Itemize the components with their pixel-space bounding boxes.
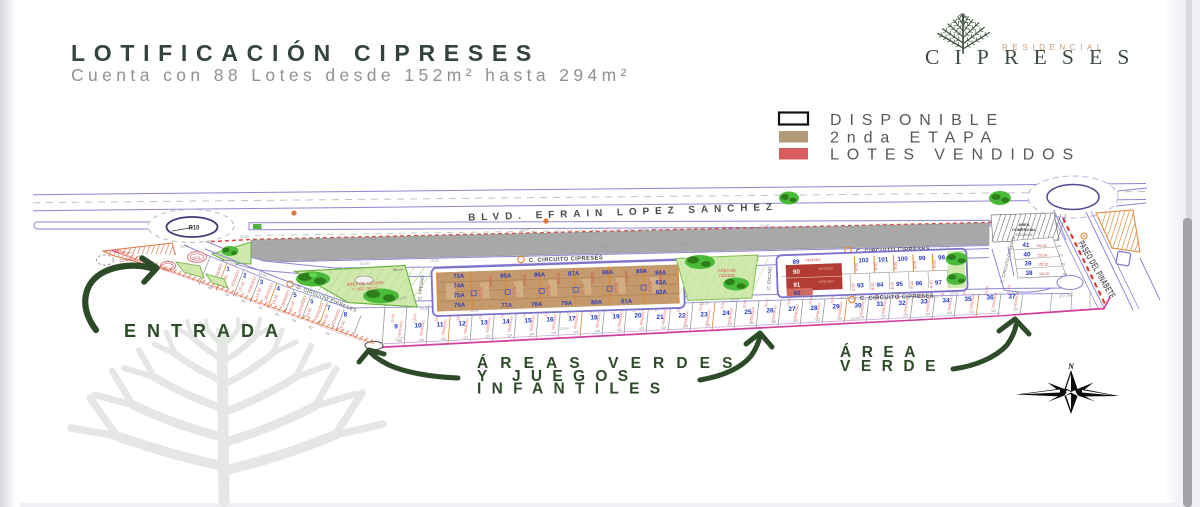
svg-text:15.00: 15.00 <box>730 298 739 302</box>
svg-text:92: 92 <box>794 290 802 297</box>
svg-text:8.00: 8.00 <box>929 280 933 288</box>
svg-text:100: 100 <box>897 256 908 263</box>
svg-text:152.00: 152.00 <box>659 270 663 282</box>
svg-text:15.00: 15.00 <box>950 291 959 295</box>
svg-text:89: 89 <box>792 259 800 266</box>
svg-text:152.00: 152.00 <box>489 276 493 288</box>
svg-text:15.00: 15.00 <box>520 228 529 232</box>
svg-text:15.00: 15.00 <box>240 235 249 239</box>
svg-text:96: 96 <box>915 280 923 287</box>
svg-text:41: 41 <box>1023 242 1030 249</box>
svg-text:89A: 89A <box>636 269 648 275</box>
svg-text:VERDE: VERDE <box>840 358 946 375</box>
svg-text:15.00: 15.00 <box>840 295 849 299</box>
svg-text:39: 39 <box>1025 261 1032 268</box>
svg-text:15.00: 15.00 <box>700 250 709 254</box>
svg-text:152.00: 152.00 <box>1036 244 1046 248</box>
svg-text:15.00: 15.00 <box>420 307 429 311</box>
svg-text:78A: 78A <box>531 302 543 308</box>
svg-text:LOTES VENDIDOS: LOTES VENDIDOS <box>830 147 1081 164</box>
svg-text:15.00: 15.00 <box>700 302 709 306</box>
svg-text:CIPRESES: CIPRESES <box>925 45 1145 69</box>
svg-text:85A: 85A <box>500 273 512 279</box>
svg-text:15.00: 15.00 <box>760 224 769 228</box>
svg-text:79A: 79A <box>561 301 573 307</box>
svg-text:152.00: 152.00 <box>557 273 561 285</box>
svg-text:8.00: 8.00 <box>851 283 855 291</box>
svg-text:8.00: 8.00 <box>933 260 937 268</box>
svg-text:73A: 73A <box>453 274 465 280</box>
svg-text:8.00: 8.00 <box>871 283 875 291</box>
svg-text:75A: 75A <box>454 293 466 299</box>
svg-text:90: 90 <box>793 269 801 276</box>
svg-text:15.00: 15.00 <box>880 223 889 227</box>
svg-text:152.00: 152.00 <box>1039 272 1049 276</box>
svg-text:38: 38 <box>1026 270 1033 277</box>
svg-text:74A: 74A <box>453 283 465 289</box>
svg-text:152.00: 152.00 <box>615 282 619 294</box>
svg-text:76A: 76A <box>454 303 466 309</box>
svg-text:98 m²: 98 m² <box>393 268 403 272</box>
svg-text:152.00: 152.00 <box>523 274 527 286</box>
svg-text:15.00: 15.00 <box>640 229 649 233</box>
svg-text:R10: R10 <box>188 226 200 232</box>
svg-text:M01: M01 <box>193 255 202 260</box>
svg-text:82A: 82A <box>656 290 668 296</box>
svg-text:99: 99 <box>918 255 926 262</box>
svg-text:152.00: 152.00 <box>513 286 517 298</box>
svg-text:2nda ETAPA: 2nda ETAPA <box>830 130 999 147</box>
svg-text:88A: 88A <box>602 270 614 276</box>
svg-text:LOTIFICACIÓN CIPRESES: LOTIFICACIÓN CIPRESES <box>71 39 540 66</box>
svg-text:15.00: 15.00 <box>940 247 949 251</box>
svg-text:8.00: 8.00 <box>913 261 917 269</box>
svg-text:15.00: 15.00 <box>620 301 629 305</box>
svg-text:152.00: 152.00 <box>625 271 629 283</box>
svg-text:152.00: 152.00 <box>591 272 595 284</box>
svg-text:15.00: 15.00 <box>470 309 479 313</box>
svg-text:91: 91 <box>793 282 801 289</box>
svg-text:8.00: 8.00 <box>894 262 898 270</box>
svg-text:CESION: CESION <box>719 273 735 278</box>
svg-text:INFANTILES: INFANTILES <box>477 381 670 398</box>
svg-text:15.00: 15.00 <box>360 262 369 266</box>
svg-text:VENDIDO: VENDIDO <box>805 258 821 263</box>
svg-text:675.98 m2: 675.98 m2 <box>1016 233 1033 237</box>
svg-text:98: 98 <box>938 254 946 261</box>
svg-text:15.00: 15.00 <box>600 245 609 249</box>
svg-text:Cuenta con 88 Lotes desde 152m: Cuenta con 88 Lotes desde 152m² hasta 29… <box>71 65 631 85</box>
svg-text:152.00: 152.00 <box>649 281 653 293</box>
svg-text:97: 97 <box>935 279 943 286</box>
svg-text:ENTRADA: ENTRADA <box>124 321 289 341</box>
svg-text:93: 93 <box>857 282 865 289</box>
svg-text:▭: ▭ <box>1059 252 1064 257</box>
svg-text:8.00: 8.00 <box>874 262 878 270</box>
svg-text:87A: 87A <box>568 271 580 277</box>
svg-text:DISPONIBLE: DISPONIBLE <box>830 112 1005 129</box>
svg-text:8.00: 8.00 <box>890 282 894 290</box>
svg-text:15.00: 15.00 <box>930 295 939 299</box>
svg-text:15.00: 15.00 <box>560 327 569 331</box>
svg-text:COMERCIAL: COMERCIAL <box>1012 227 1037 232</box>
svg-text:▭: ▭ <box>1057 243 1062 248</box>
svg-text:152.00: 152.00 <box>479 287 483 299</box>
svg-text:101: 101 <box>878 256 889 263</box>
svg-text:94: 94 <box>876 282 884 289</box>
svg-text:15.00: 15.00 <box>680 243 689 247</box>
svg-text:152.00: 152.00 <box>547 285 551 297</box>
svg-text:152.00: 152.00 <box>1037 253 1047 257</box>
svg-text:15.00: 15.00 <box>975 242 984 246</box>
svg-text:15.00: 15.00 <box>1010 291 1019 295</box>
svg-text:15.00: 15.00 <box>310 259 319 263</box>
svg-text:102: 102 <box>858 257 869 264</box>
svg-text:8.00: 8.00 <box>910 281 914 289</box>
svg-text:80A: 80A <box>591 300 603 306</box>
svg-text:VENDIDO: VENDIDO <box>818 266 834 271</box>
svg-text:15.00: 15.00 <box>430 259 439 263</box>
svg-text:15.00: 15.00 <box>510 305 519 309</box>
svg-text:8.00: 8.00 <box>855 263 859 271</box>
svg-text:152.00: 152.00 <box>1038 263 1048 267</box>
svg-text:152.00: 152.00 <box>581 283 585 295</box>
svg-text:40: 40 <box>1024 251 1031 258</box>
svg-text:86A: 86A <box>534 272 546 278</box>
svg-text:▭: ▭ <box>1061 262 1066 267</box>
svg-text:VENDIDO: VENDIDO <box>818 279 834 284</box>
svg-text:15.00: 15.00 <box>770 247 779 251</box>
svg-text:95: 95 <box>896 281 904 288</box>
